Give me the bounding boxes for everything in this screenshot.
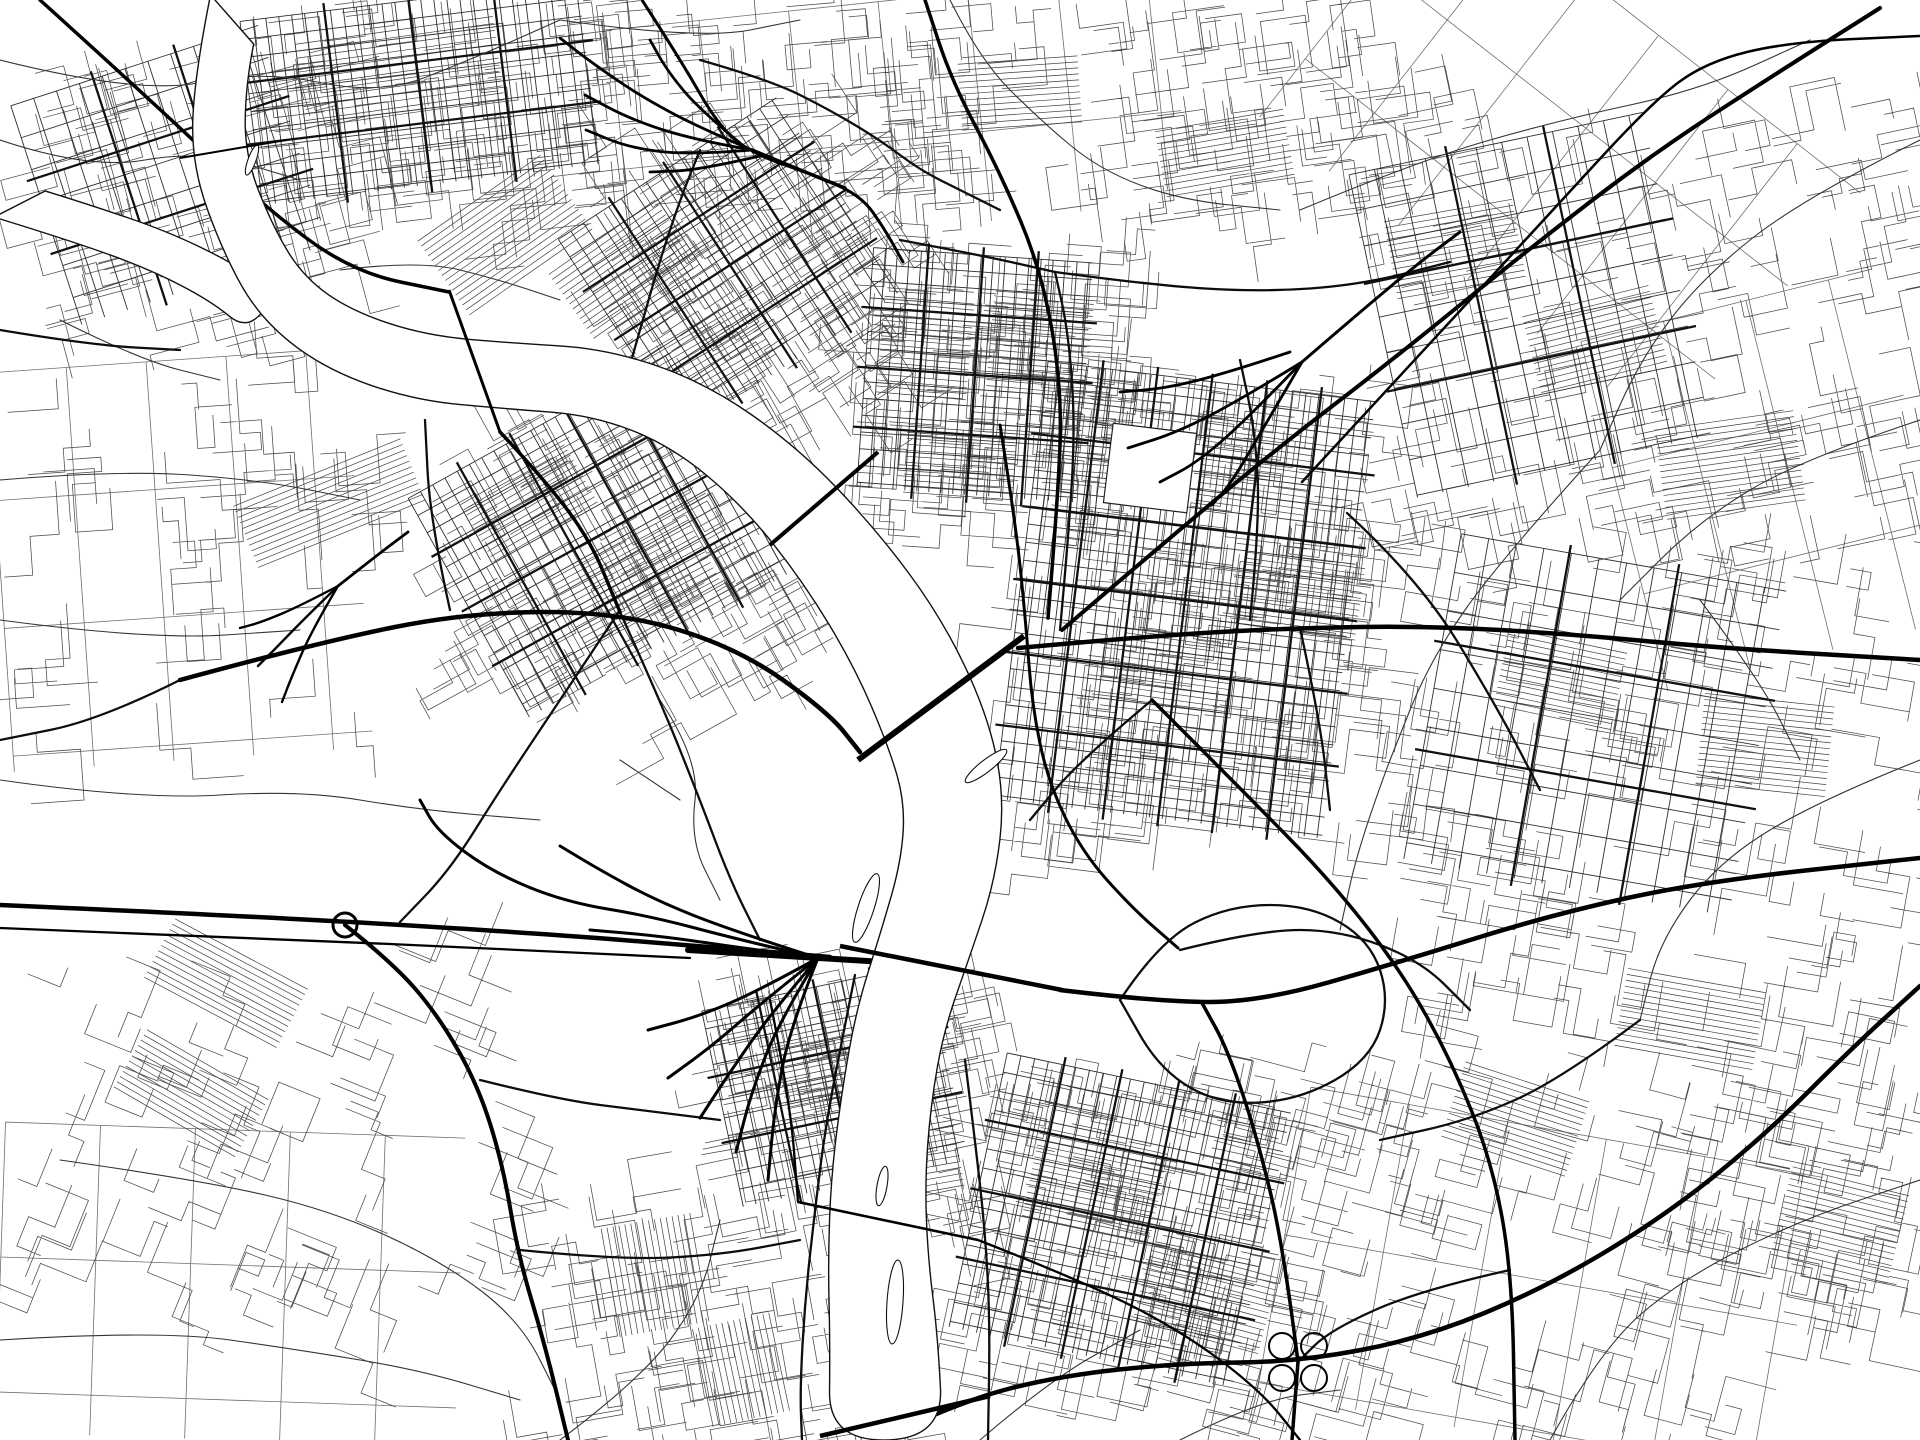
map-canvas [0,0,1920,1440]
park-layer [1103,423,1196,513]
city-map [0,0,1920,1440]
river-layer [0,0,1010,1440]
hatch-layer [114,17,1909,1427]
